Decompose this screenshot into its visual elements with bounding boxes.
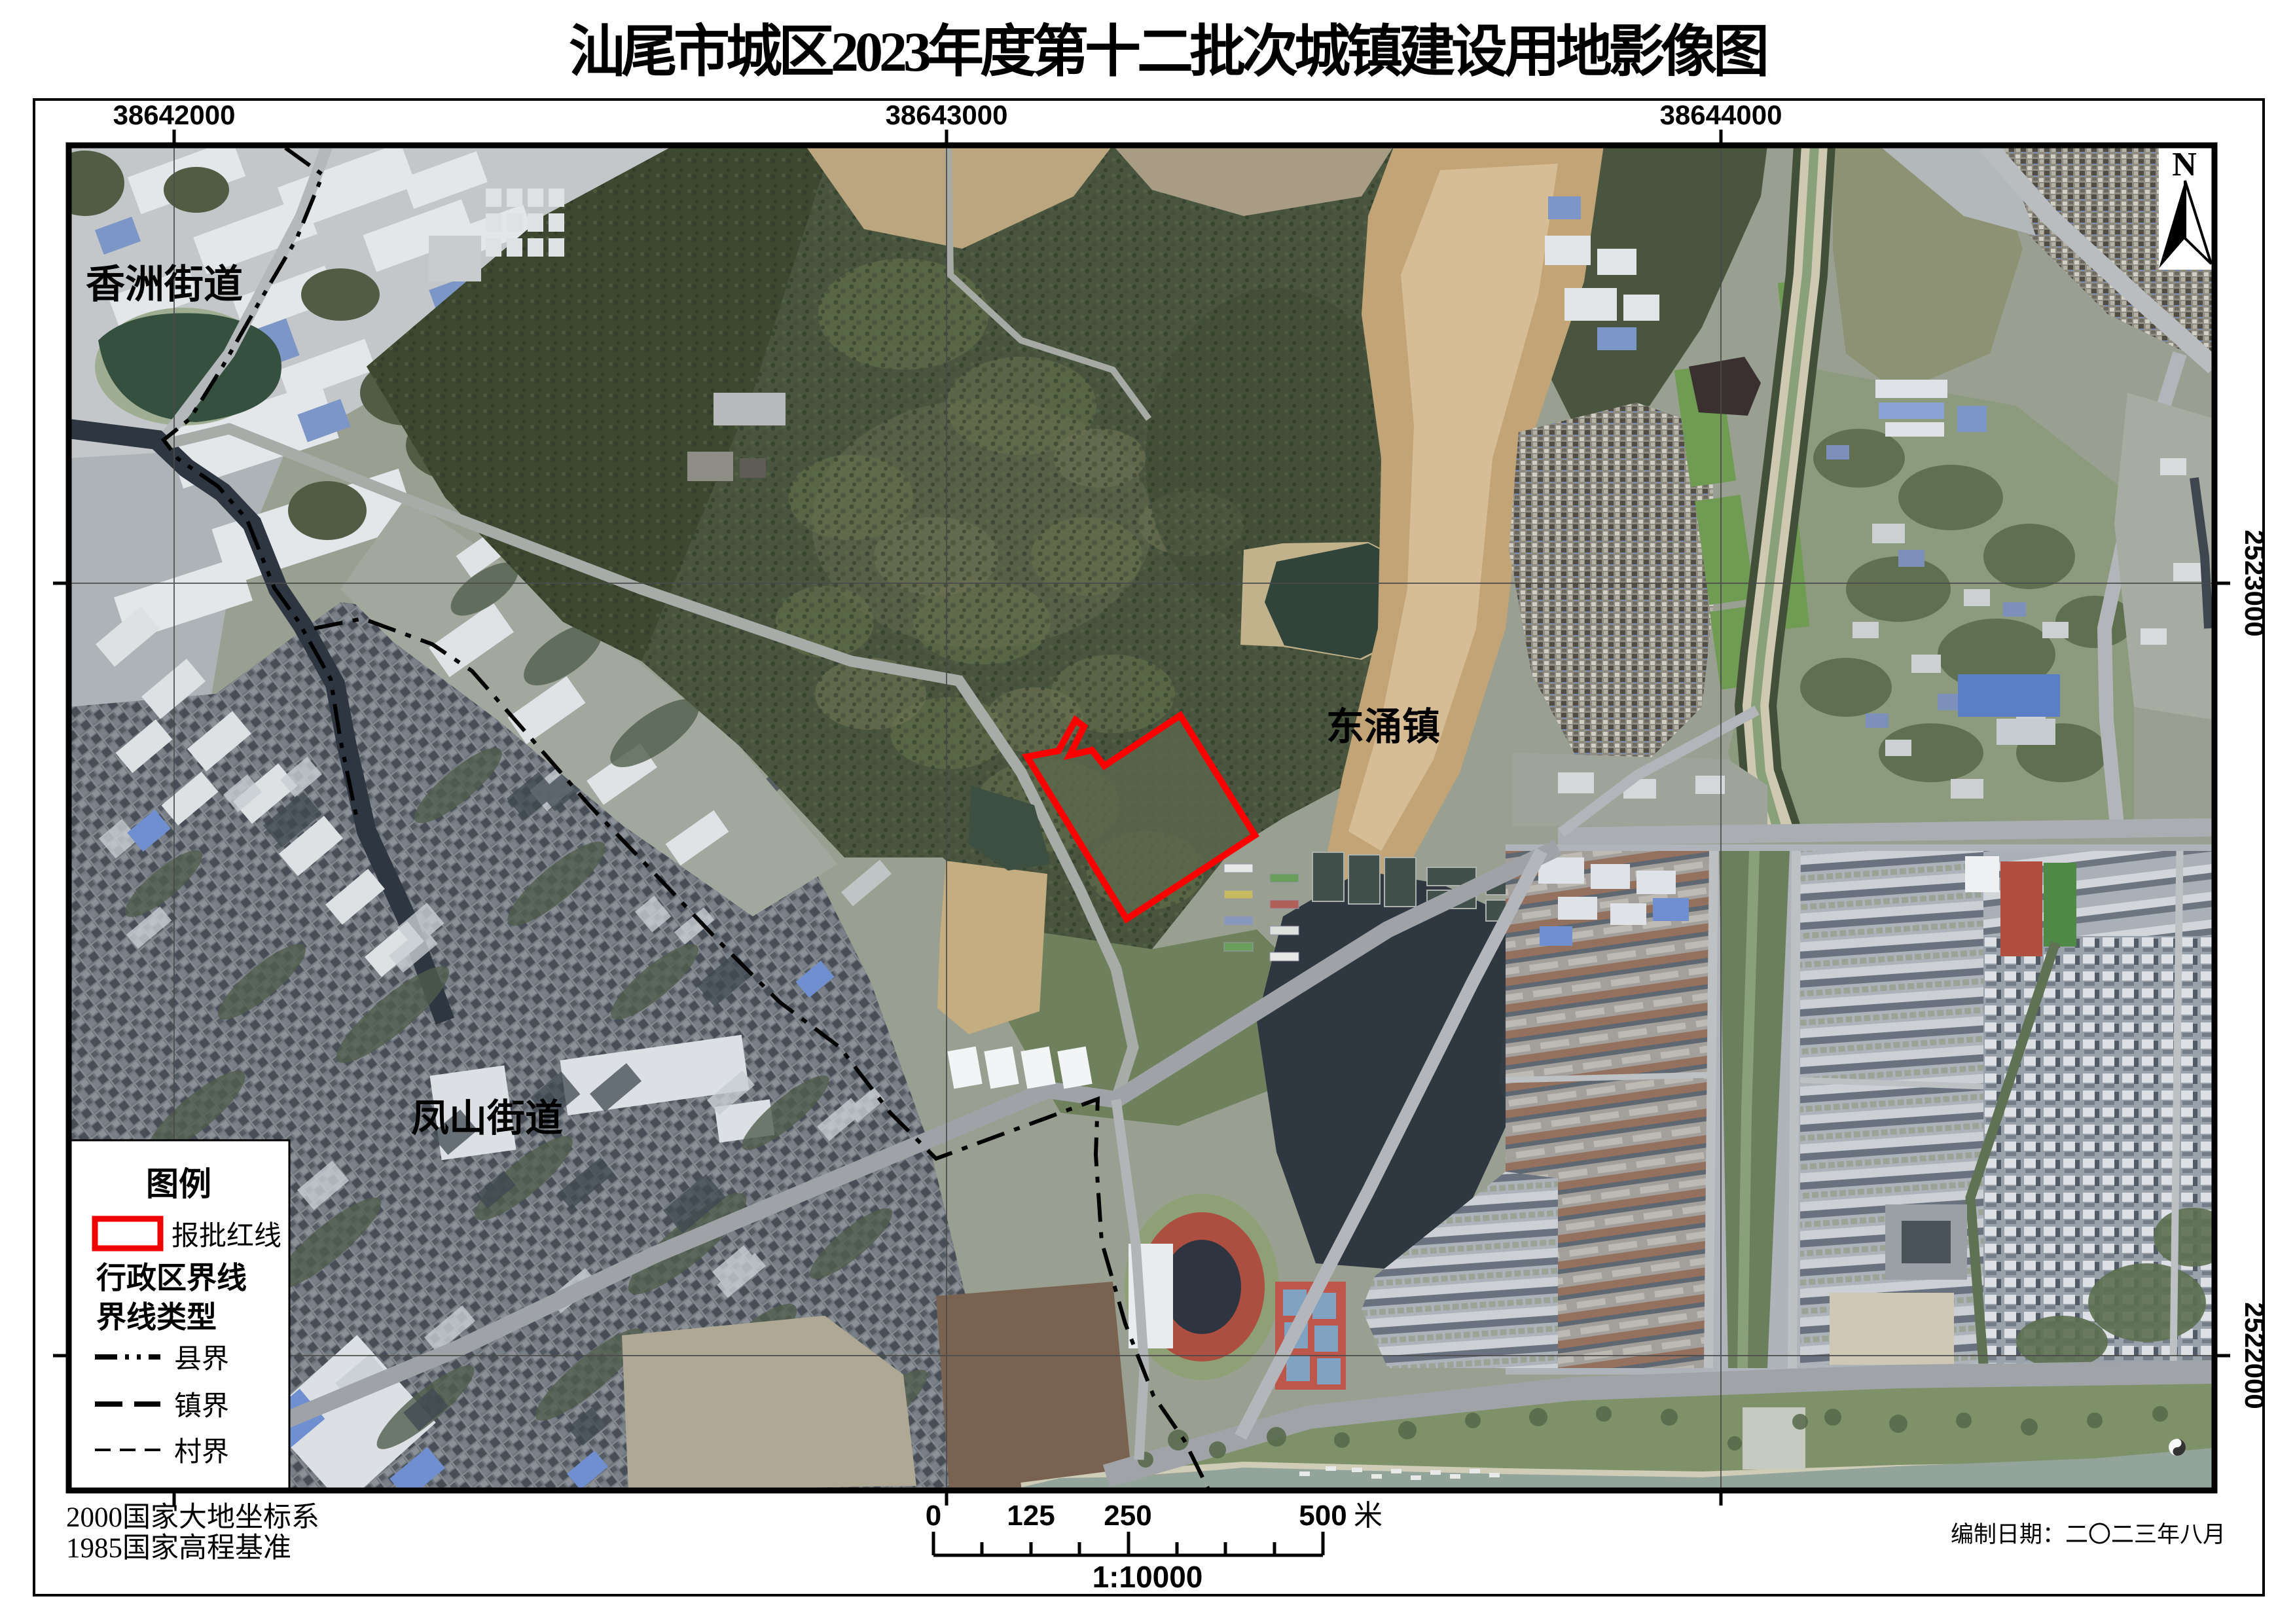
- svg-text:村界: 村界: [174, 1437, 229, 1468]
- svg-text:2522000: 2522000: [2239, 1302, 2270, 1409]
- svg-text:编制日期：二〇二三年八月: 编制日期：二〇二三年八月: [1951, 1522, 2226, 1547]
- svg-text:2000国家大地坐标系: 2000国家大地坐标系: [66, 1502, 319, 1533]
- svg-text:125: 125: [1007, 1500, 1055, 1532]
- svg-text:汕尾市城区2023年度第十二批次城镇建设用地影像图: 汕尾市城区2023年度第十二批次城镇建设用地影像图: [569, 20, 1766, 83]
- svg-text:38643000: 38643000: [886, 99, 1008, 130]
- svg-text:行政区界线: 行政区界线: [96, 1261, 247, 1295]
- svg-text:500: 500: [1299, 1500, 1346, 1532]
- svg-text:1985国家高程基准: 1985国家高程基准: [66, 1532, 291, 1564]
- svg-text:1:10000: 1:10000: [1093, 1560, 1203, 1594]
- svg-text:米: 米: [1354, 1500, 1382, 1532]
- svg-text:界线类型: 界线类型: [96, 1301, 217, 1334]
- svg-text:香洲街道: 香洲街道: [86, 263, 243, 306]
- svg-text:N: N: [2172, 146, 2197, 183]
- svg-text:250: 250: [1104, 1500, 1151, 1532]
- svg-text:报批红线: 报批红线: [172, 1221, 281, 1252]
- svg-text:图例: 图例: [146, 1166, 211, 1202]
- svg-text:38642000: 38642000: [113, 99, 236, 130]
- svg-text:镇界: 镇界: [174, 1392, 229, 1422]
- svg-text:2523000: 2523000: [2239, 530, 2270, 637]
- svg-text:凤山街道: 凤山街道: [411, 1097, 563, 1140]
- svg-text:东涌镇: 东涌镇: [1326, 706, 1440, 748]
- svg-text:38644000: 38644000: [1660, 99, 1782, 130]
- svg-text:县界: 县界: [174, 1344, 229, 1375]
- svg-text:0: 0: [926, 1500, 941, 1532]
